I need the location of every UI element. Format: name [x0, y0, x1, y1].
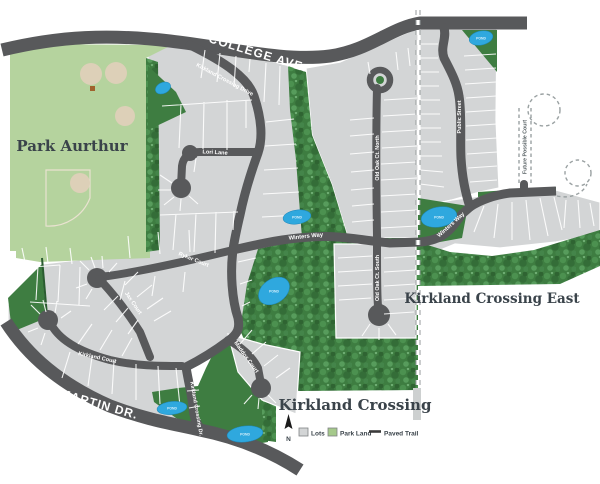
legend-swatch-park-land — [328, 428, 337, 436]
legend-label-lots: Lots — [311, 431, 325, 438]
legend-label-park-land: Park Land — [340, 431, 371, 438]
pond-label: POND — [434, 216, 444, 220]
ballfield-infield — [80, 63, 102, 85]
legend-swatch-lots — [299, 428, 308, 436]
ballfield-infield — [115, 106, 135, 126]
development-title: Kirkland Crossing — [279, 396, 432, 414]
road-label-old-oak-ct-north: Old Oak Ct. North — [375, 135, 381, 180]
road-label-old-oak-ct-south: Old Oak Ct. South — [375, 255, 381, 301]
road-label-future-possible-court: Future Possible Court — [523, 120, 529, 174]
pond-label: POND — [269, 290, 279, 294]
pond-label: POND — [292, 216, 302, 220]
park-title: Park Aurthur — [16, 137, 128, 155]
ballfield-infield — [105, 62, 127, 84]
legend-label-paved-trail: Paved Trail — [384, 431, 419, 438]
cul-de-sac-lori — [171, 178, 191, 198]
old-oak-teardrop-island — [376, 76, 384, 84]
pond-label: POND — [240, 433, 250, 437]
pond-label: POND — [167, 407, 177, 411]
cul-de-sac-old-oak-south — [368, 304, 390, 326]
development-east-title: Kirkland Crossing East — [404, 291, 580, 307]
park-building — [90, 86, 95, 91]
subdivision-map: POND POND POND POND POND POND COLLEGE AV… — [0, 0, 600, 484]
road-label-public-street: Public Street — [457, 100, 463, 133]
ballfield-infield — [70, 173, 90, 193]
pond-label: POND — [476, 37, 486, 41]
north-label: N — [286, 436, 291, 443]
